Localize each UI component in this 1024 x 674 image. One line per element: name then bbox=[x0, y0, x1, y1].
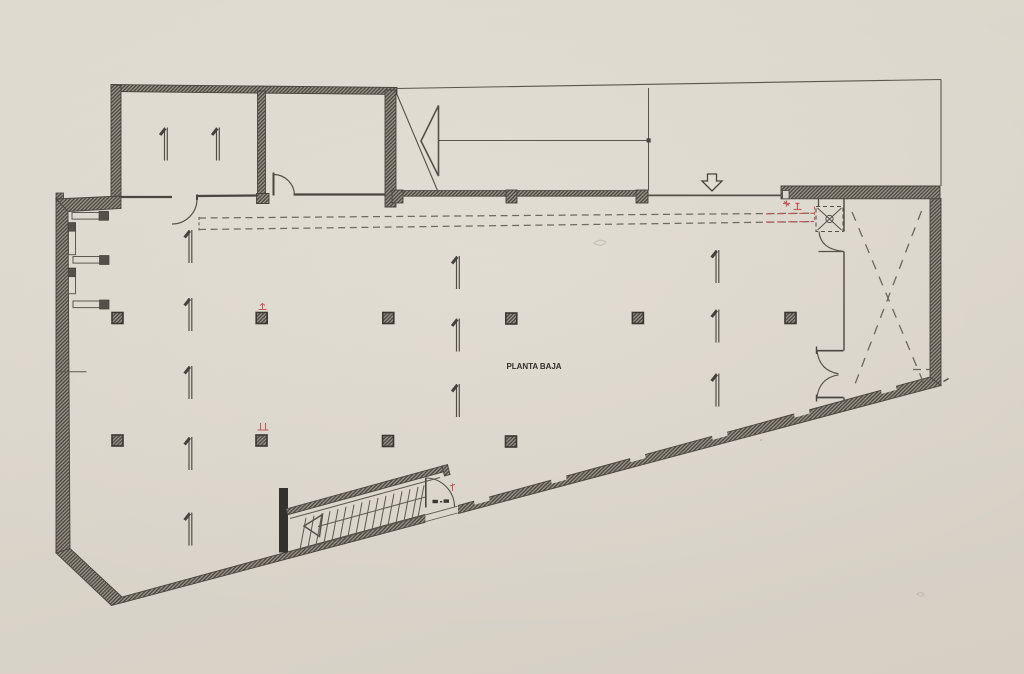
svg-text:PLANTA BAJA: PLANTA BAJA bbox=[507, 362, 562, 371]
